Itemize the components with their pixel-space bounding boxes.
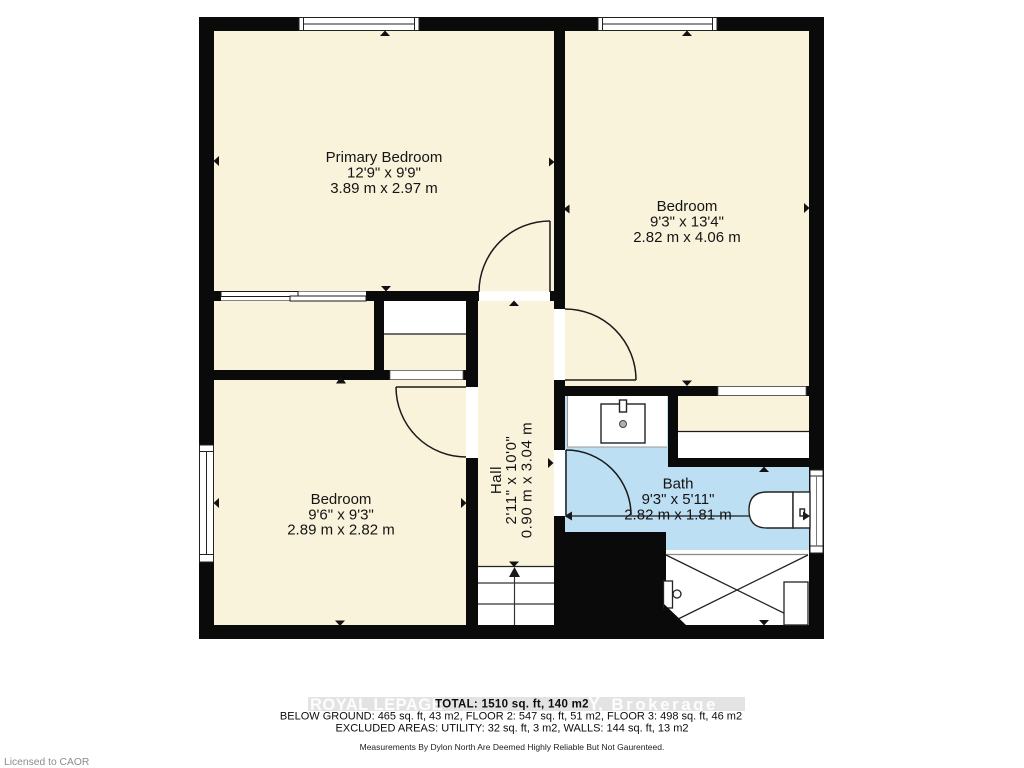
svg-text:2.82 m x 4.06 m: 2.82 m x 4.06 m [633,229,741,246]
svg-text:2.89 m x 2.82 m: 2.89 m x 2.82 m [287,522,395,539]
svg-text:0.90 m x 3.04 m: 0.90 m x 3.04 m [519,422,536,539]
svg-text:Primary Bedroom: Primary Bedroom [326,149,443,166]
svg-text:Licensed to CAOR: Licensed to CAOR [4,757,89,768]
svg-text:Measurements By Dylon North Ar: Measurements By Dylon North Are Deemed H… [360,742,665,752]
svg-text:EXCLUDED AREAS: UTILITY: 32 sq: EXCLUDED AREAS: UTILITY: 32 sq. ft, 3 m2… [336,723,689,735]
svg-text:TOTAL: 1510 sq. ft, 140 m2: TOTAL: 1510 sq. ft, 140 m2 [435,699,589,711]
svg-text:BELOW GROUND: 465 sq. ft, 43 m: BELOW GROUND: 465 sq. ft, 43 m2, FLOOR 2… [280,711,742,723]
svg-text:Bath: Bath [663,476,694,493]
svg-text:2.82 m x 1.81 m: 2.82 m x 1.81 m [624,507,732,524]
svg-text:3.89 m x 2.97 m: 3.89 m x 2.97 m [330,180,438,197]
svg-text:2'11" x 10'0": 2'11" x 10'0" [503,436,520,525]
svg-text:9'3" x 13'4": 9'3" x 13'4" [650,214,724,231]
svg-text:9'3" x 5'11": 9'3" x 5'11" [642,491,715,508]
svg-text:Bedroom: Bedroom [311,491,372,508]
svg-text:Bedroom: Bedroom [657,198,718,215]
